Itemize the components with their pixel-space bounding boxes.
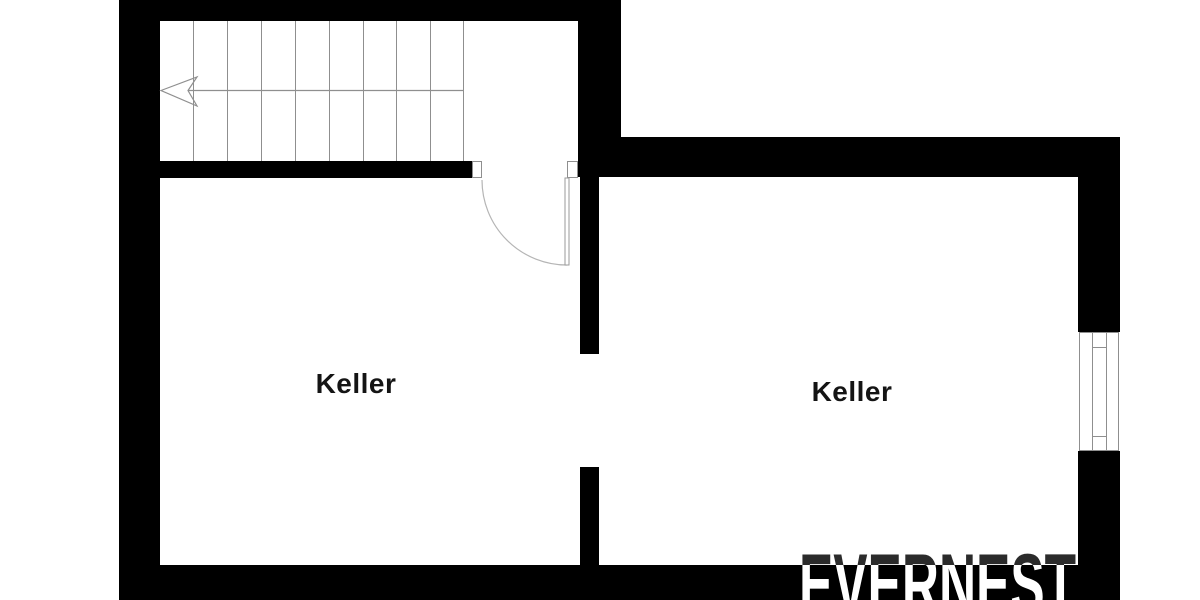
wall-middle-lower [580, 467, 599, 565]
wall-room2-top [621, 137, 1120, 177]
stair-direction-arrow-icon [161, 77, 464, 106]
door-swing-icon [482, 178, 569, 265]
wall-stair-bottom [160, 161, 472, 178]
door-jamb-right [567, 161, 578, 178]
room-label-keller-left: Keller [256, 370, 456, 398]
wall-left [119, 0, 160, 600]
room-label-keller-right: Keller [752, 378, 952, 406]
wall-middle-upper [580, 177, 599, 354]
floorplan-canvas: EVERNEST EVERNEST Keller Keller [0, 0, 1200, 600]
wall-bottom [119, 565, 1120, 600]
staircase-treads-icon [194, 21, 464, 161]
wall-top [119, 0, 621, 21]
wall-right-upper [1078, 177, 1120, 332]
window-icon [1080, 333, 1119, 451]
door-jamb-left [472, 161, 482, 178]
wall-stair-right [578, 0, 621, 177]
